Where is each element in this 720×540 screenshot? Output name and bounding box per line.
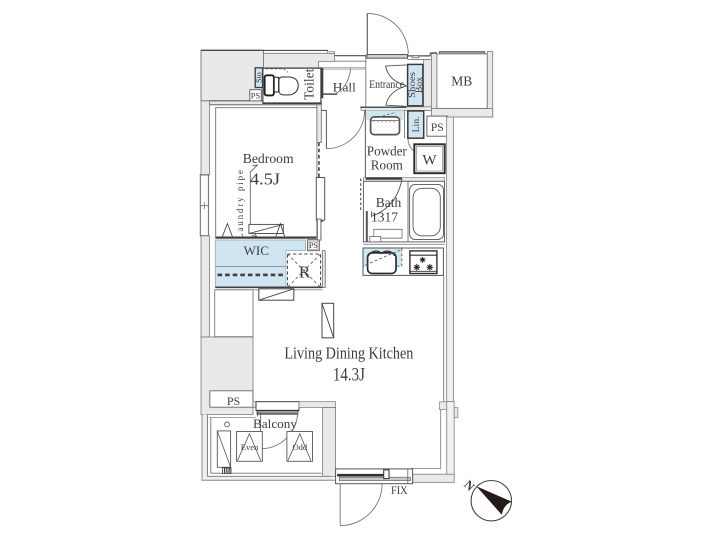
svg-text:PS: PS xyxy=(309,241,318,250)
svg-text:Lin.: Lin. xyxy=(412,116,422,132)
svg-text:Sto: Sto xyxy=(254,72,263,83)
svg-text:1317: 1317 xyxy=(371,209,398,224)
svg-text:Hall: Hall xyxy=(333,79,356,94)
svg-text:PS: PS xyxy=(251,91,261,101)
svg-text:Living Dining Kitchen: Living Dining Kitchen xyxy=(284,343,413,362)
svg-text:Bedroom: Bedroom xyxy=(243,152,294,167)
svg-text:PS: PS xyxy=(227,394,240,408)
svg-text:Powder: Powder xyxy=(367,144,407,159)
svg-text:PS: PS xyxy=(431,122,444,134)
svg-text:Even: Even xyxy=(241,442,259,452)
svg-text:FIX: FIX xyxy=(391,485,408,497)
svg-text:14.3J: 14.3J xyxy=(333,365,365,386)
svg-text:4.5J: 4.5J xyxy=(250,169,281,188)
svg-text:Entrance: Entrance xyxy=(369,79,404,91)
svg-text:W: W xyxy=(422,153,437,169)
svg-text:Odd: Odd xyxy=(292,442,307,452)
svg-text:Toilet: Toilet xyxy=(303,68,318,100)
svg-text:Bath: Bath xyxy=(376,195,402,210)
svg-text:Balcony: Balcony xyxy=(253,417,298,431)
svg-text:R: R xyxy=(299,263,311,282)
svg-text:Laundry pipe: Laundry pipe xyxy=(235,170,245,239)
svg-text:MB: MB xyxy=(451,74,472,89)
svg-text:WIC: WIC xyxy=(244,243,269,258)
svg-text:Box: Box xyxy=(415,77,425,93)
svg-text:Room: Room xyxy=(371,158,403,173)
